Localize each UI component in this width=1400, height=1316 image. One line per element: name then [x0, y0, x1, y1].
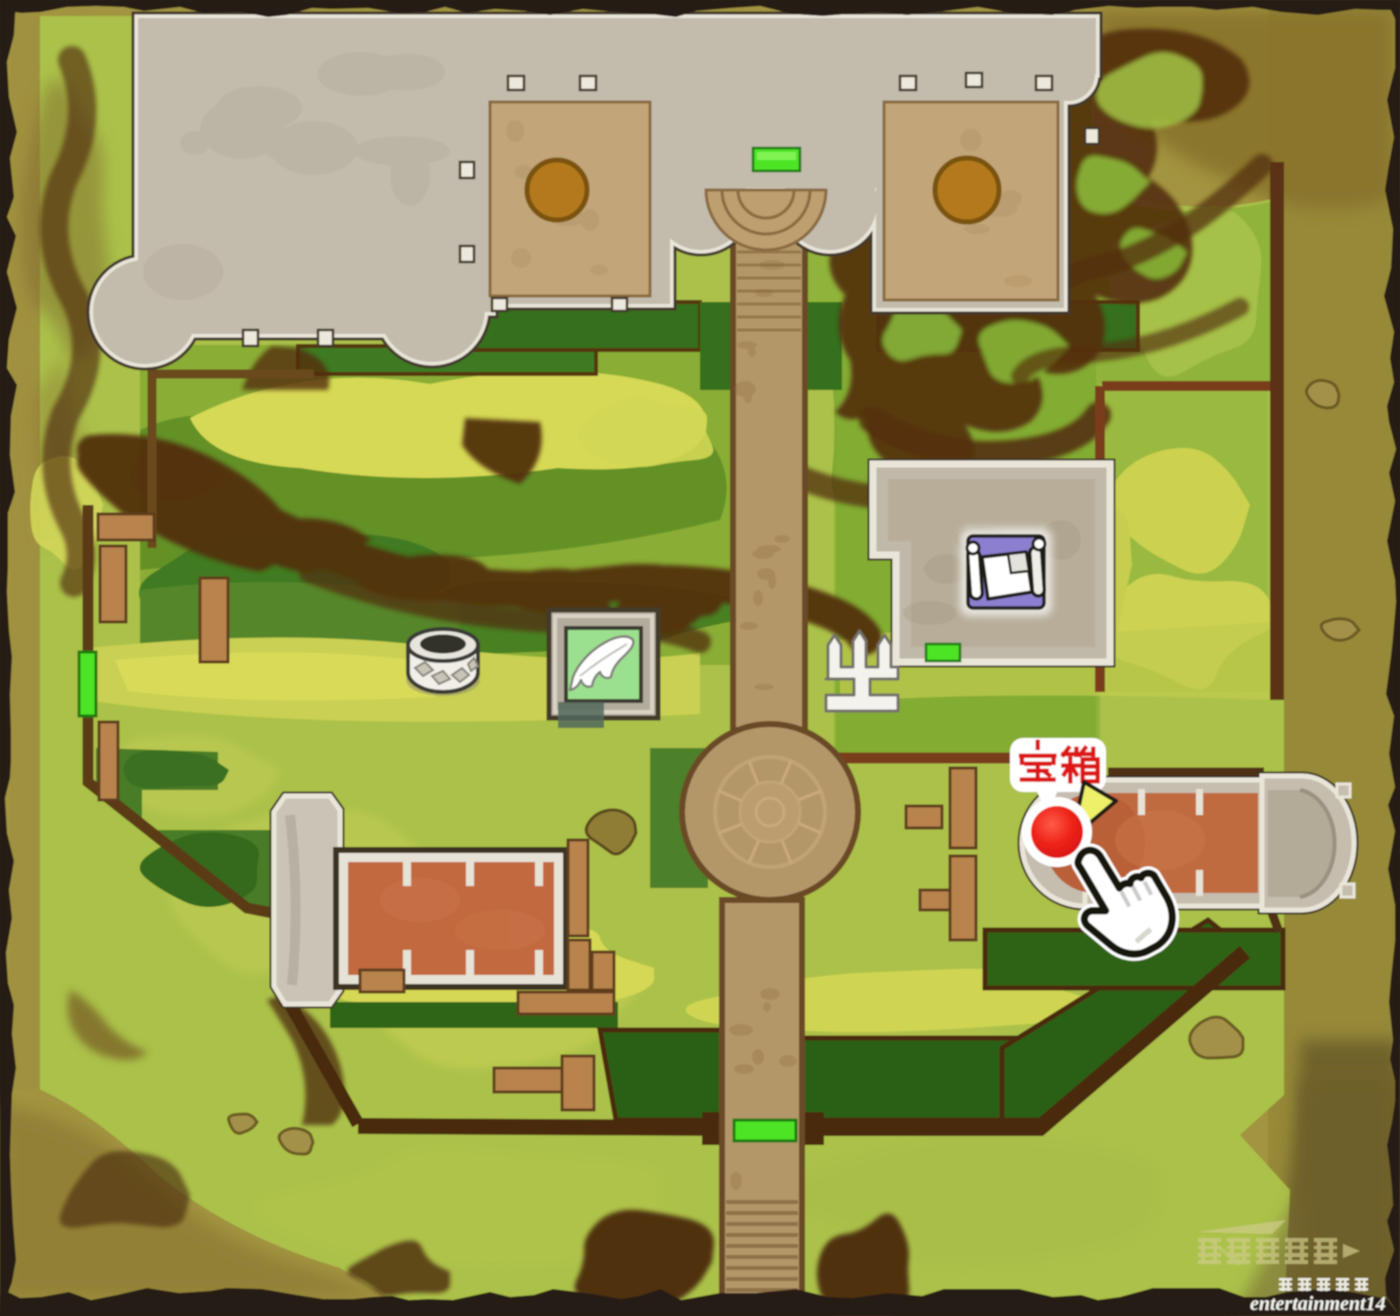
svg-text:entertainment14: entertainment14: [1250, 1293, 1386, 1315]
